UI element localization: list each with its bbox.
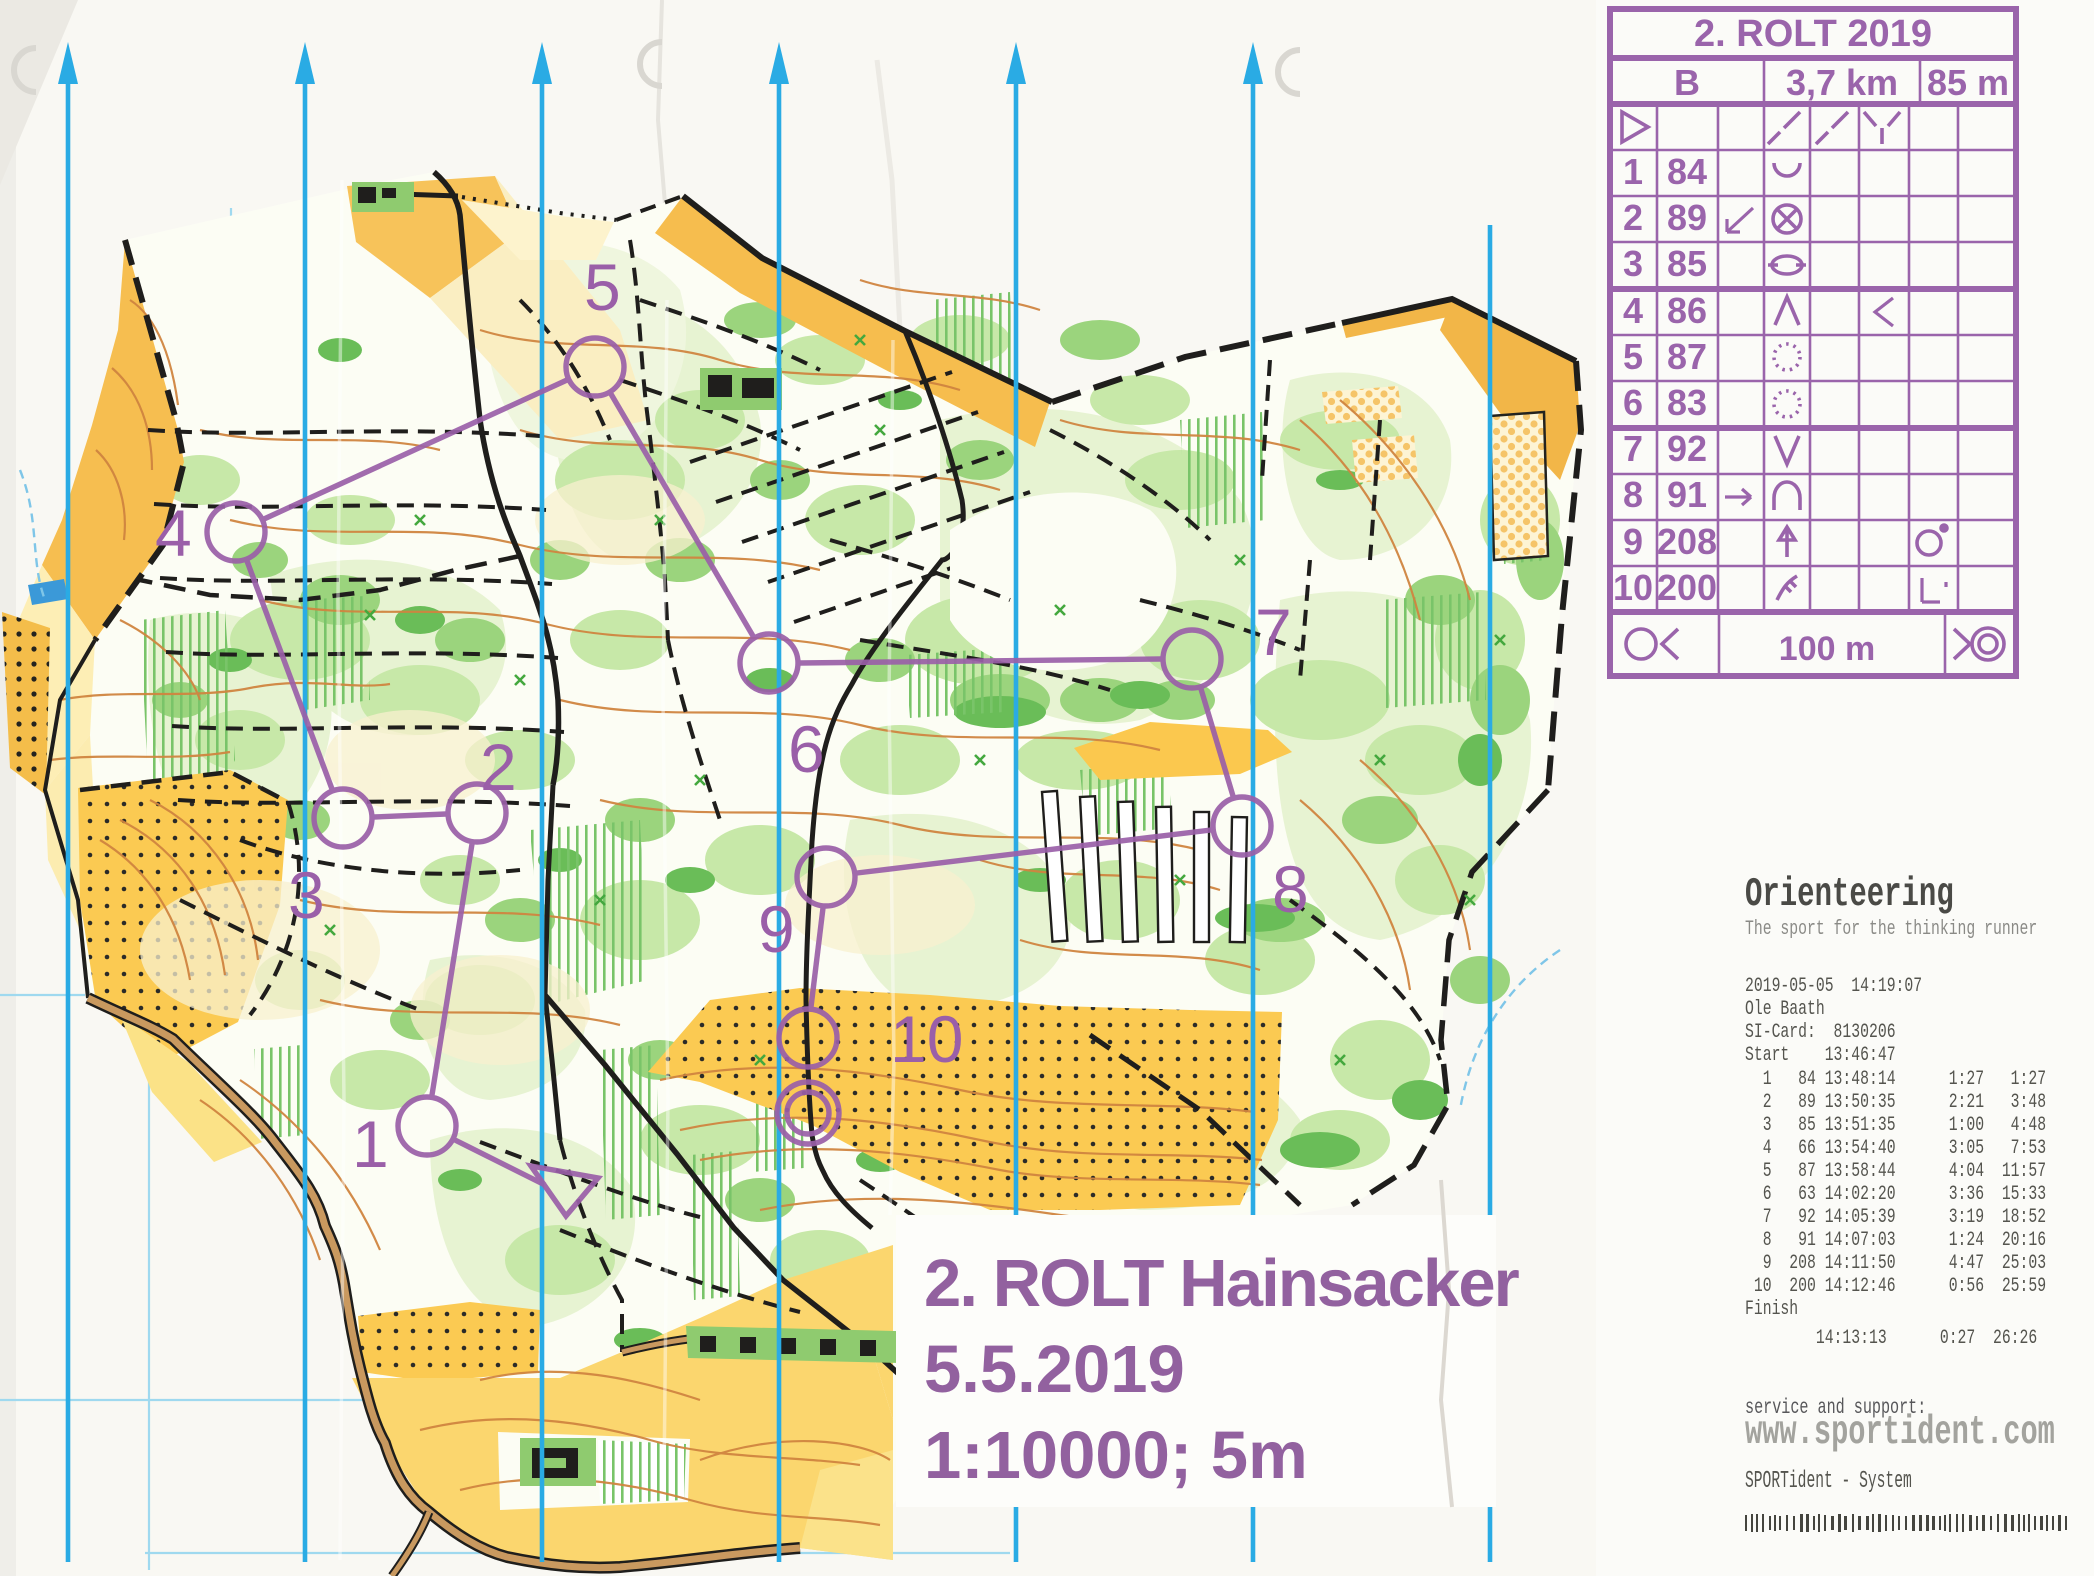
svg-text:SI-Card: 8130206: SI-Card: 8130206 bbox=[1745, 1021, 1896, 1044]
svg-text:Ole Baath: Ole Baath bbox=[1745, 998, 1825, 1021]
svg-text:3: 3 bbox=[1623, 243, 1643, 284]
svg-text:86: 86 bbox=[1667, 290, 1707, 331]
svg-text:9: 9 bbox=[758, 892, 795, 966]
svg-text:89: 89 bbox=[1667, 197, 1707, 238]
svg-text:1:10000; 5m: 1:10000; 5m bbox=[924, 1418, 1308, 1493]
svg-text:92: 92 bbox=[1667, 428, 1707, 469]
svg-text:2019-05-05 14:19:07: 2019-05-05 14:19:07 bbox=[1745, 975, 1922, 998]
svg-text:Start 13:46:47: Start 13:46:47 bbox=[1745, 1044, 1896, 1067]
svg-text:The sport for the thinking run: The sport for the thinking runner bbox=[1745, 918, 2037, 941]
svg-text:6: 6 bbox=[1623, 382, 1643, 423]
svg-text:6: 6 bbox=[788, 712, 825, 786]
svg-text:1: 1 bbox=[1623, 151, 1643, 192]
svg-text:2. ROLT Hainsacker: 2. ROLT Hainsacker bbox=[924, 1246, 1520, 1321]
svg-text:Orienteering: Orienteering bbox=[1745, 870, 1954, 917]
svg-text:10: 10 bbox=[890, 1002, 963, 1076]
svg-text:5.5.2019: 5.5.2019 bbox=[924, 1332, 1185, 1407]
svg-text:2: 2 bbox=[480, 730, 517, 804]
svg-text:3: 3 bbox=[288, 858, 325, 932]
svg-text:91: 91 bbox=[1667, 474, 1707, 515]
svg-text:4: 4 bbox=[1623, 290, 1643, 331]
svg-text:9 208 14:11:50 4:47 25:: 9 208 14:11:50 4:47 25:03 bbox=[1745, 1252, 2046, 1275]
svg-text:7 92 14:05:39 3:19 18:: 7 92 14:05:39 3:19 18:52 bbox=[1745, 1206, 2046, 1229]
svg-text:1 84 13:48:14 1:27 1:: 1 84 13:48:14 1:27 1:27 bbox=[1745, 1068, 2046, 1091]
svg-text:4: 4 bbox=[155, 496, 192, 570]
svg-text:85 m: 85 m bbox=[1927, 62, 2009, 103]
svg-text:Finish: Finish bbox=[1745, 1298, 1798, 1321]
svg-text:B: B bbox=[1674, 62, 1700, 103]
svg-text:84: 84 bbox=[1667, 151, 1707, 192]
svg-text:14:13:13 0:27 26:26: 14:13:13 0:27 26:26 bbox=[1745, 1327, 2037, 1350]
svg-text:3,7 km: 3,7 km bbox=[1786, 62, 1898, 103]
svg-text:7: 7 bbox=[1255, 595, 1292, 669]
svg-text:5: 5 bbox=[584, 250, 621, 324]
svg-text:www.sportident.com: www.sportident.com bbox=[1745, 1409, 2055, 1455]
svg-text:2. ROLT 2019: 2. ROLT 2019 bbox=[1694, 13, 1932, 55]
svg-text:200: 200 bbox=[1657, 567, 1717, 608]
svg-text:SPORTident - System: SPORTident - System bbox=[1745, 1466, 1912, 1494]
svg-text:5: 5 bbox=[1623, 336, 1643, 377]
svg-text:10: 10 bbox=[1613, 567, 1653, 608]
svg-text:2 89 13:50:35 2:21 3:: 2 89 13:50:35 2:21 3:48 bbox=[1745, 1091, 2046, 1114]
svg-text:1: 1 bbox=[352, 1107, 389, 1181]
svg-text:6 63 14:02:20 3:36 15:: 6 63 14:02:20 3:36 15:33 bbox=[1745, 1183, 2046, 1206]
svg-text:3 85 13:51:35 1:00 4:: 3 85 13:51:35 1:00 4:48 bbox=[1745, 1114, 2046, 1137]
svg-text:10 200 14:12:46 0:56 25: 10 200 14:12:46 0:56 25:59 bbox=[1745, 1275, 2046, 1298]
svg-text:87: 87 bbox=[1667, 336, 1707, 377]
svg-text:100 m: 100 m bbox=[1779, 630, 1875, 668]
svg-text:9: 9 bbox=[1623, 521, 1643, 562]
svg-text:8 91 14:07:03 1:24 20:: 8 91 14:07:03 1:24 20:16 bbox=[1745, 1229, 2046, 1252]
svg-text:8: 8 bbox=[1623, 474, 1643, 515]
svg-text:208: 208 bbox=[1657, 521, 1717, 562]
svg-text:7: 7 bbox=[1623, 428, 1643, 469]
svg-text:2: 2 bbox=[1623, 197, 1643, 238]
svg-text:8: 8 bbox=[1272, 852, 1309, 926]
svg-text:85: 85 bbox=[1667, 243, 1707, 284]
svg-text:4 66 13:54:40 3:05 7:: 4 66 13:54:40 3:05 7:53 bbox=[1745, 1137, 2046, 1160]
svg-text:83: 83 bbox=[1667, 382, 1707, 423]
svg-text:5 87 13:58:44 4:04 11:: 5 87 13:58:44 4:04 11:57 bbox=[1745, 1160, 2046, 1183]
